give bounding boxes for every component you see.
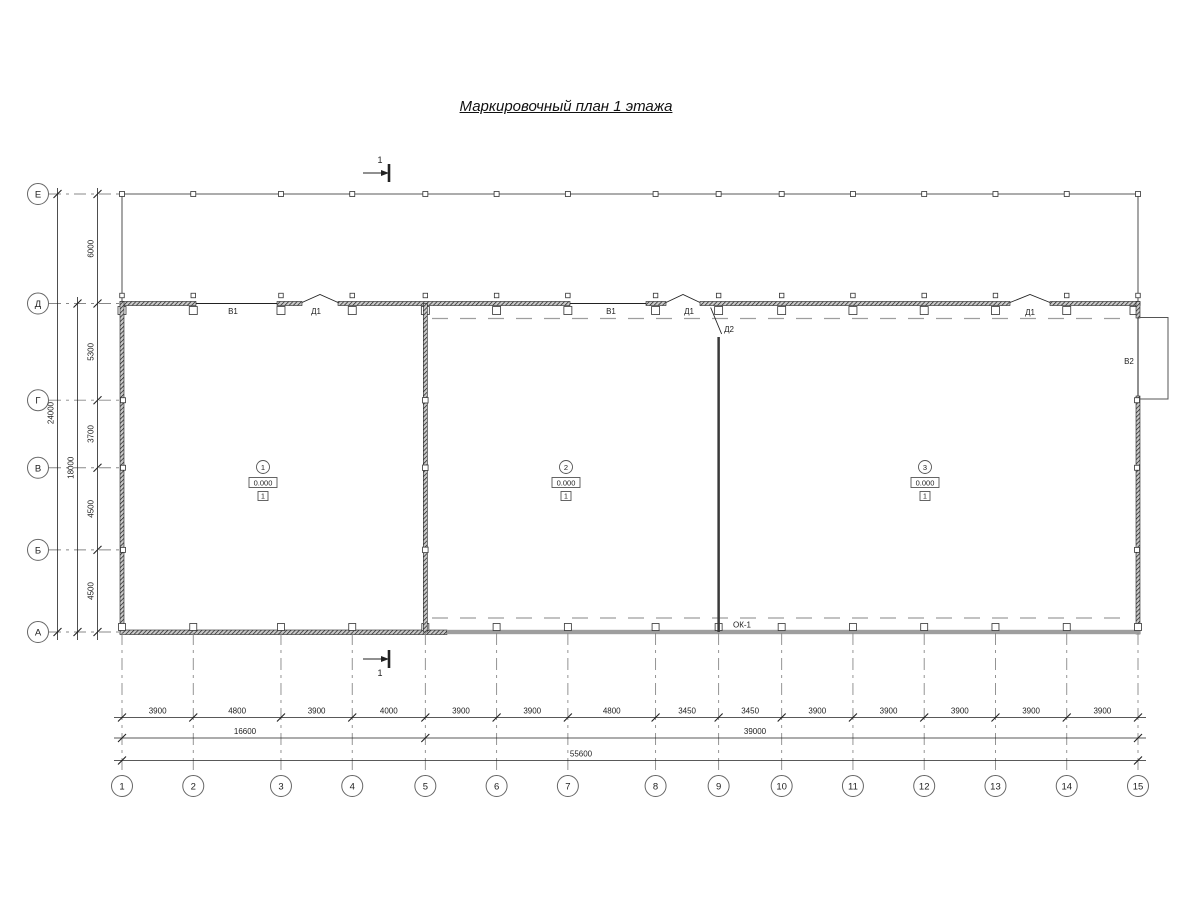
opening-label-3: В1 [606, 307, 616, 316]
dim-group-rows: 18000 [67, 456, 76, 479]
column-mark-below-wall [564, 307, 572, 315]
dim-col-segment: 3900 [880, 707, 898, 716]
east-wall [1136, 396, 1140, 634]
column-mark-above-wall [423, 293, 428, 298]
column-mark-above-wall [993, 293, 998, 298]
opening-label-7: В2 [1124, 357, 1134, 366]
column-mark-below-wall [849, 307, 857, 315]
dim-row-segment: 6000 [87, 239, 96, 257]
row-axis-label: А [35, 628, 42, 639]
canopy-column-mark [120, 192, 125, 197]
column-mark-partition [423, 547, 429, 553]
row-axis-label: Б [35, 545, 41, 556]
row-axis-label: В [35, 463, 41, 474]
north-wall [120, 302, 196, 306]
dim-row-segment: 3700 [87, 425, 96, 443]
column-mark-above-wall [779, 293, 784, 298]
column-mark-east [1135, 398, 1140, 403]
column-mark-partition [423, 397, 429, 403]
column-mark-south [992, 624, 999, 631]
dim-overall-rows: 24000 [47, 401, 56, 424]
column-mark-above-wall [350, 293, 355, 298]
opening-label-5: Д2 [724, 325, 734, 334]
dim-row-segment: 4500 [87, 499, 96, 517]
section-label: 1 [377, 155, 382, 165]
dim-col-segment: 3900 [951, 707, 969, 716]
north-wall [338, 302, 570, 306]
north-wall [277, 302, 302, 306]
elevation-label: 0.000 [254, 479, 273, 488]
canopy-column-mark [993, 192, 998, 197]
door-leaf-symbol [302, 295, 338, 303]
floor-type-label: 1 [564, 494, 568, 501]
opening-label-1: В1 [228, 307, 238, 316]
section-label: 1 [377, 668, 382, 678]
column-mark-above-wall [566, 293, 571, 298]
column-mark-below-wall [189, 307, 197, 315]
column-axis-label: 5 [423, 782, 428, 793]
canopy-column-mark [565, 192, 570, 197]
column-mark-above-wall [1136, 293, 1141, 298]
column-axis-label: 12 [919, 782, 930, 793]
column-mark-below-wall [778, 307, 786, 315]
column-mark-south [1063, 624, 1070, 631]
column-axis-label: 4 [350, 782, 355, 793]
column-axis-label: 9 [716, 782, 721, 793]
dim-col-segment: 3900 [523, 707, 541, 716]
north-wall [700, 302, 1010, 306]
canopy-column-mark [278, 192, 283, 197]
column-mark-south [277, 624, 284, 631]
column-mark-west [121, 398, 126, 403]
floor-type-label: 1 [261, 494, 265, 501]
dim-row-segment: 4500 [87, 581, 96, 599]
dim-col-segment: 3900 [149, 707, 167, 716]
dim-col-segment: 3900 [308, 707, 326, 716]
column-mark-south [921, 624, 928, 631]
canopy-column-mark [191, 192, 196, 197]
canopy-column-mark [494, 192, 499, 197]
column-mark-below-wall [1063, 307, 1071, 315]
north-wall [1050, 302, 1140, 306]
south-glazed-wall [447, 630, 1140, 634]
opening-label-4: Д1 [684, 307, 694, 316]
column-axis-label: 8 [653, 782, 658, 793]
canopy-column-mark [716, 192, 721, 197]
column-mark-below-wall [991, 307, 999, 315]
column-mark-above-wall [279, 293, 284, 298]
column-mark-south [1135, 624, 1142, 631]
column-axis-label: 1 [119, 782, 124, 793]
column-mark-west [121, 547, 126, 552]
drawing-title: Маркировочный план 1 этажа [0, 98, 1132, 115]
column-mark-above-wall [922, 293, 927, 298]
column-mark-south [564, 624, 571, 631]
column-mark-south [119, 624, 126, 631]
canopy-column-mark [922, 192, 927, 197]
column-mark-above-wall [191, 293, 196, 298]
room-number: 2 [564, 463, 568, 472]
door-leaf-symbol [666, 295, 700, 303]
gate-B2-apron [1140, 318, 1168, 400]
elevation-label: 0.000 [557, 479, 576, 488]
column-mark-above-wall [653, 293, 658, 298]
dim-col-segment: 3450 [678, 707, 696, 716]
dim-col-segment: 3900 [808, 707, 826, 716]
column-mark-south [778, 624, 785, 631]
canopy-column-mark [350, 192, 355, 197]
column-mark-below-wall [652, 307, 660, 315]
column-axis-label: 3 [278, 782, 283, 793]
row-axis-label: Е [35, 190, 41, 201]
canopy-column-mark [779, 192, 784, 197]
floor-type-label: 1 [923, 494, 927, 501]
column-mark-south [493, 624, 500, 631]
dim-group-cols: 16600 [234, 727, 257, 736]
floor-plan-canvas: В1Д1В1Д1Д2Д1В2ОК-110.000120.000130.0001Е… [0, 0, 1200, 900]
column-mark-south [652, 624, 659, 631]
column-mark-below-wall [348, 307, 356, 315]
row-axis-label: Г [35, 396, 40, 407]
column-mark-east [1135, 465, 1140, 470]
column-mark-partition [423, 465, 429, 471]
dim-col-segment: 4000 [380, 707, 398, 716]
column-mark-above-wall [494, 293, 499, 298]
elevation-label: 0.000 [916, 479, 935, 488]
column-mark-below-wall [493, 307, 501, 315]
column-mark-south [849, 624, 856, 631]
dim-overall-cols: 55600 [570, 750, 593, 759]
north-wall [646, 302, 666, 306]
canopy-column-mark [850, 192, 855, 197]
opening-label-6: Д1 [1025, 308, 1035, 317]
opening-label-2: Д1 [311, 307, 321, 316]
column-mark-above-wall [716, 293, 721, 298]
room-number: 1 [261, 463, 265, 472]
dim-col-segment: 3900 [1022, 707, 1040, 716]
column-mark-south [190, 624, 197, 631]
column-mark-below-wall [277, 307, 285, 315]
room-number: 3 [923, 463, 927, 472]
column-mark-south [349, 624, 356, 631]
column-mark-above-wall [851, 293, 856, 298]
column-mark-above-wall [1064, 293, 1069, 298]
column-axis-label: 2 [191, 782, 196, 793]
canopy-column-mark [1064, 192, 1069, 197]
dim-col-segment: 3900 [452, 707, 470, 716]
column-mark-west [121, 465, 126, 470]
column-mark-below-wall [920, 307, 928, 315]
dim-col-segment: 3900 [1093, 707, 1111, 716]
column-axis-label: 6 [494, 782, 499, 793]
east-wall [1136, 302, 1140, 319]
dim-col-segment: 4800 [603, 707, 621, 716]
row-axis-label: Д [35, 299, 42, 310]
opening-label-8: ОК-1 [733, 621, 752, 630]
column-mark-below-wall [715, 307, 723, 315]
dim-col-segment: 3450 [741, 707, 759, 716]
column-mark-above-wall [120, 293, 125, 298]
dim-row-segment: 5300 [87, 342, 96, 360]
canopy-column-mark [1136, 192, 1141, 197]
dim-col-segment: 4800 [228, 707, 246, 716]
floor-plan-sheet: Маркировочный план 1 этажа В1Д1В1Д1Д2Д1В… [0, 0, 1200, 900]
column-axis-label: 13 [990, 782, 1001, 793]
door-leaf-symbol [1010, 295, 1050, 303]
dim-group-cols: 39000 [744, 727, 767, 736]
column-axis-label: 14 [1061, 782, 1072, 793]
column-mark-east [1135, 547, 1140, 552]
canopy-column-mark [653, 192, 658, 197]
column-axis-label: 15 [1133, 782, 1144, 793]
column-axis-label: 11 [848, 782, 858, 793]
column-axis-label: 10 [776, 782, 787, 793]
canopy-column-mark [423, 192, 428, 197]
column-axis-label: 7 [565, 782, 570, 793]
